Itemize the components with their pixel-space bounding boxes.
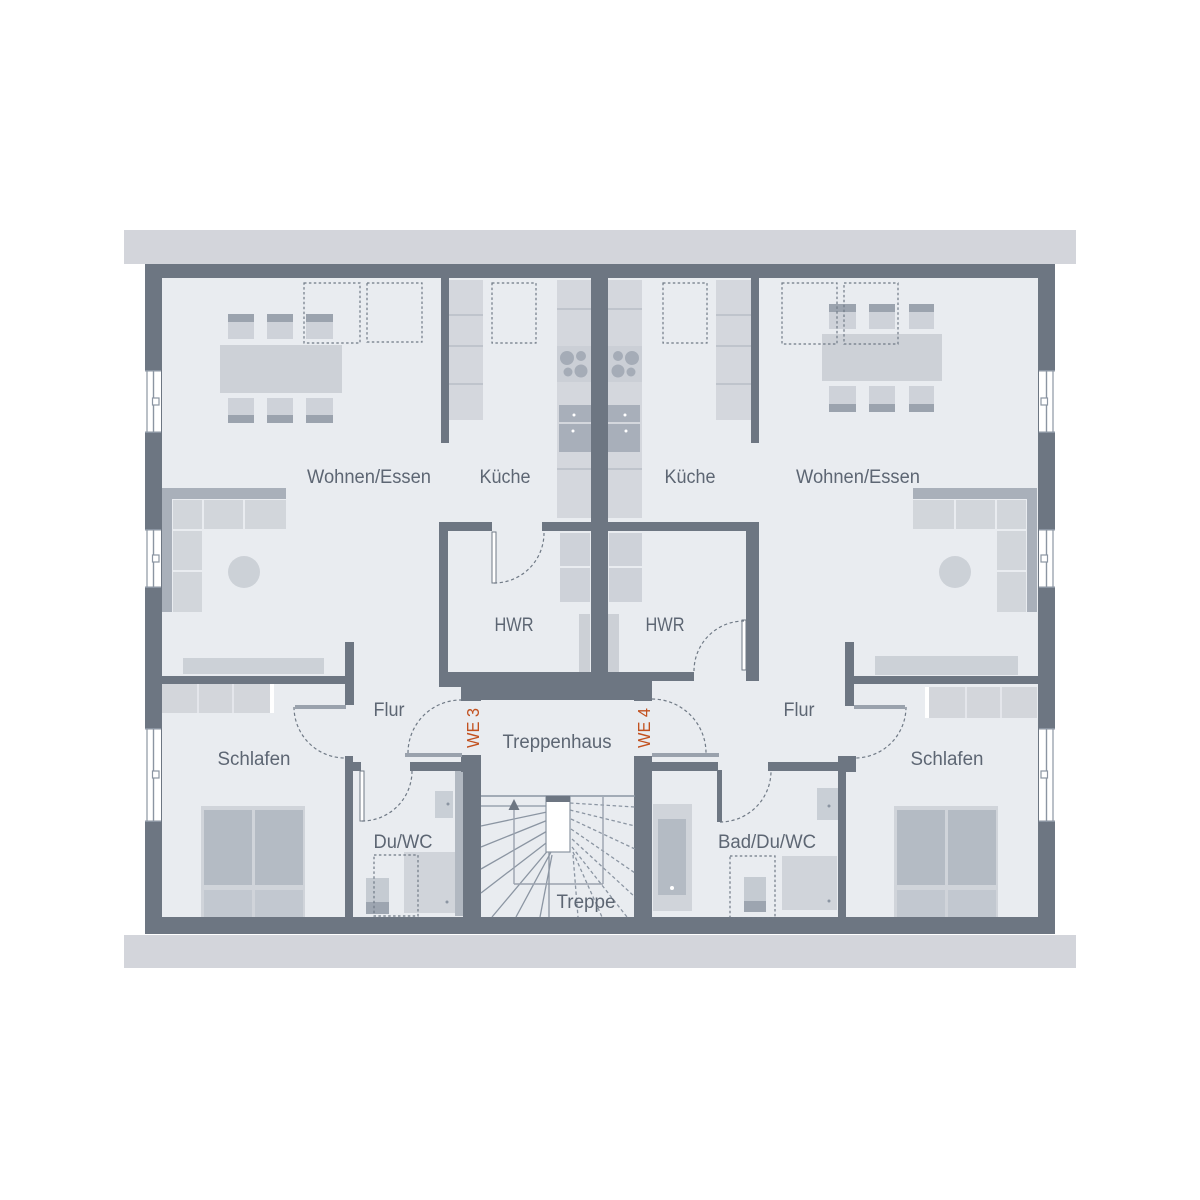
svg-text:HWR: HWR: [646, 615, 685, 636]
svg-text:Wohnen/Essen: Wohnen/Essen: [307, 467, 431, 488]
svg-text:Du/WC: Du/WC: [374, 832, 433, 853]
svg-text:Flur: Flur: [374, 700, 406, 721]
svg-text:WE 4: WE 4: [634, 708, 654, 748]
svg-text:Treppenhaus: Treppenhaus: [503, 732, 612, 753]
svg-text:Schlafen: Schlafen: [218, 749, 291, 770]
svg-text:Schlafen: Schlafen: [911, 749, 984, 770]
svg-text:Flur: Flur: [784, 700, 816, 721]
svg-text:HWR: HWR: [495, 615, 534, 636]
svg-text:WE 3: WE 3: [463, 708, 483, 748]
svg-text:Küche: Küche: [480, 467, 531, 488]
svg-text:Treppe: Treppe: [557, 892, 616, 913]
svg-text:Küche: Küche: [665, 467, 716, 488]
svg-text:Wohnen/Essen: Wohnen/Essen: [796, 467, 920, 488]
svg-text:Bad/Du/WC: Bad/Du/WC: [718, 832, 816, 853]
